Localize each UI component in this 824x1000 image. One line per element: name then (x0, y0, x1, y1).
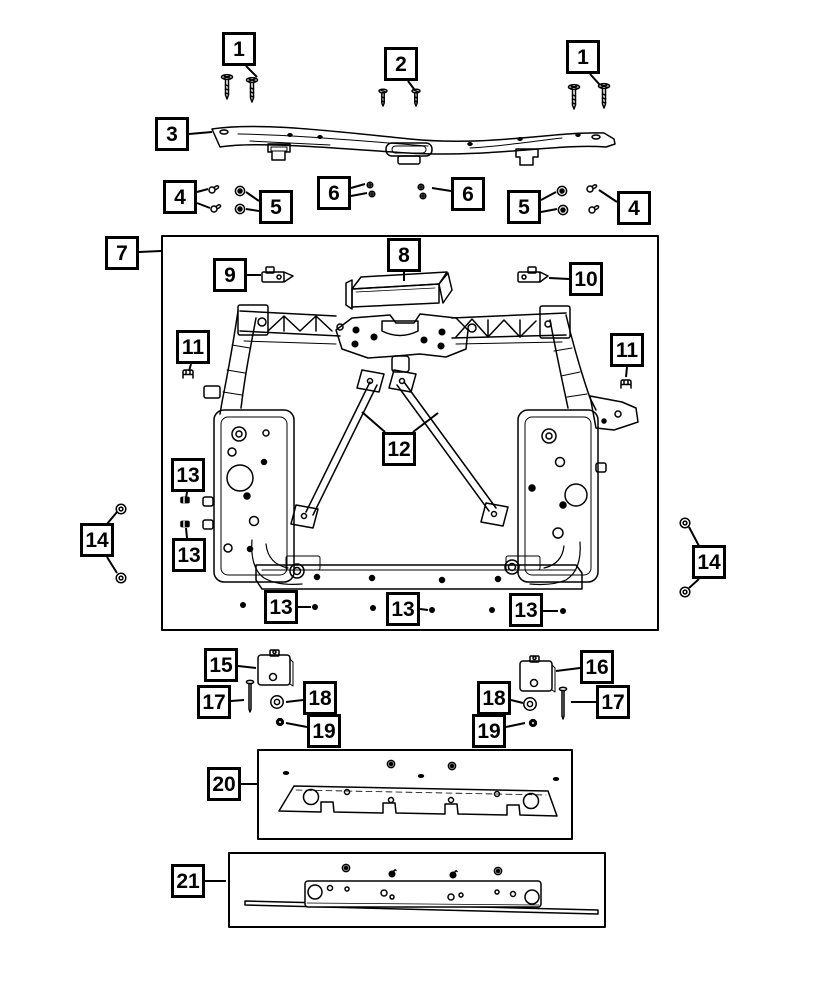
parts-diagram-page: 1213456654798101111121313131313141415161… (0, 0, 824, 1000)
bracket-15 (258, 650, 293, 686)
screws-2 (379, 89, 420, 106)
callout-1[interactable]: 1 (222, 32, 256, 66)
callout-6[interactable]: 6 (317, 176, 351, 210)
reinforcement-21-frame (229, 853, 605, 927)
callout-15[interactable]: 15 (204, 648, 238, 682)
callout-13[interactable]: 13 (264, 590, 298, 624)
callout-13[interactable]: 13 (172, 538, 206, 572)
callout-14[interactable]: 14 (692, 545, 726, 579)
callout-14[interactable]: 14 (80, 523, 114, 557)
callout-6[interactable]: 6 (451, 177, 485, 211)
callout-4[interactable]: 4 (163, 180, 197, 214)
callout-8[interactable]: 8 (387, 238, 421, 272)
screws-17 (246, 680, 566, 719)
callout-5[interactable]: 5 (507, 190, 541, 224)
crossmember-illustration (212, 126, 615, 165)
callout-3[interactable]: 3 (155, 117, 189, 151)
bracket-9 (262, 267, 293, 282)
callout-13[interactable]: 13 (509, 593, 543, 627)
rings-6-left (367, 182, 375, 197)
callout-11[interactable]: 11 (610, 333, 644, 367)
parts-diagram-artwork (0, 0, 824, 1000)
radiator-support-structure (203, 305, 638, 589)
screws-1-right (569, 84, 610, 109)
screws-1-left (222, 75, 258, 102)
callout-13[interactable]: 13 (386, 592, 420, 626)
callout-1[interactable]: 1 (566, 40, 600, 74)
grommets-5-right (557, 186, 567, 214)
callout-21[interactable]: 21 (171, 864, 205, 898)
grommets-5-left (235, 186, 244, 213)
callout-17[interactable]: 17 (596, 685, 630, 719)
callout-18[interactable]: 18 (477, 681, 511, 715)
callout-5[interactable]: 5 (259, 190, 293, 224)
bracket-16 (520, 656, 555, 692)
callout-9[interactable]: 9 (213, 258, 247, 292)
callout-7[interactable]: 7 (105, 236, 139, 270)
callout-19[interactable]: 19 (472, 714, 506, 748)
callout-16[interactable]: 16 (580, 650, 614, 684)
rings-6-right (418, 184, 426, 199)
callout-2[interactable]: 2 (384, 47, 418, 81)
clips-4-left (209, 186, 221, 212)
panel-20-frame (258, 750, 572, 839)
callout-12[interactable]: 12 (382, 432, 416, 466)
callout-13[interactable]: 13 (171, 458, 205, 492)
callout-20[interactable]: 20 (207, 767, 241, 801)
callout-11[interactable]: 11 (176, 330, 210, 364)
bracket-10 (518, 267, 548, 282)
callout-18[interactable]: 18 (303, 681, 337, 715)
block-8 (346, 272, 452, 309)
callout-19[interactable]: 19 (307, 714, 341, 748)
callout-10[interactable]: 10 (569, 262, 603, 296)
clips-4-right (587, 185, 599, 213)
callout-4[interactable]: 4 (617, 191, 651, 225)
callout-17[interactable]: 17 (197, 685, 231, 719)
